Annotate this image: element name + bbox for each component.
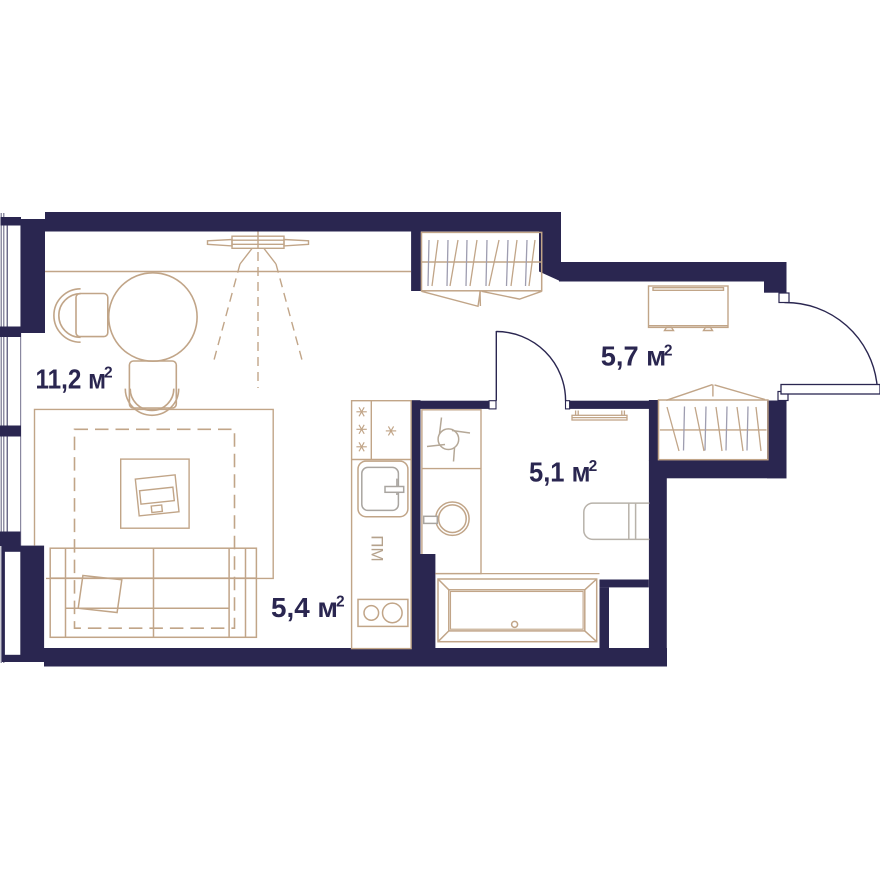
svg-text:5,7 м: 5,7 м [601,341,667,372]
svg-text:5,4 м: 5,4 м [271,592,338,623]
svg-text:2: 2 [104,365,113,382]
svg-text:2: 2 [336,594,345,611]
svg-text:2: 2 [589,458,598,475]
svg-text:5,1 м: 5,1 м [529,457,591,488]
svg-text:2: 2 [664,342,673,359]
svg-text:ПМ: ПМ [368,535,387,561]
svg-text:11,2 м: 11,2 м [36,363,107,394]
